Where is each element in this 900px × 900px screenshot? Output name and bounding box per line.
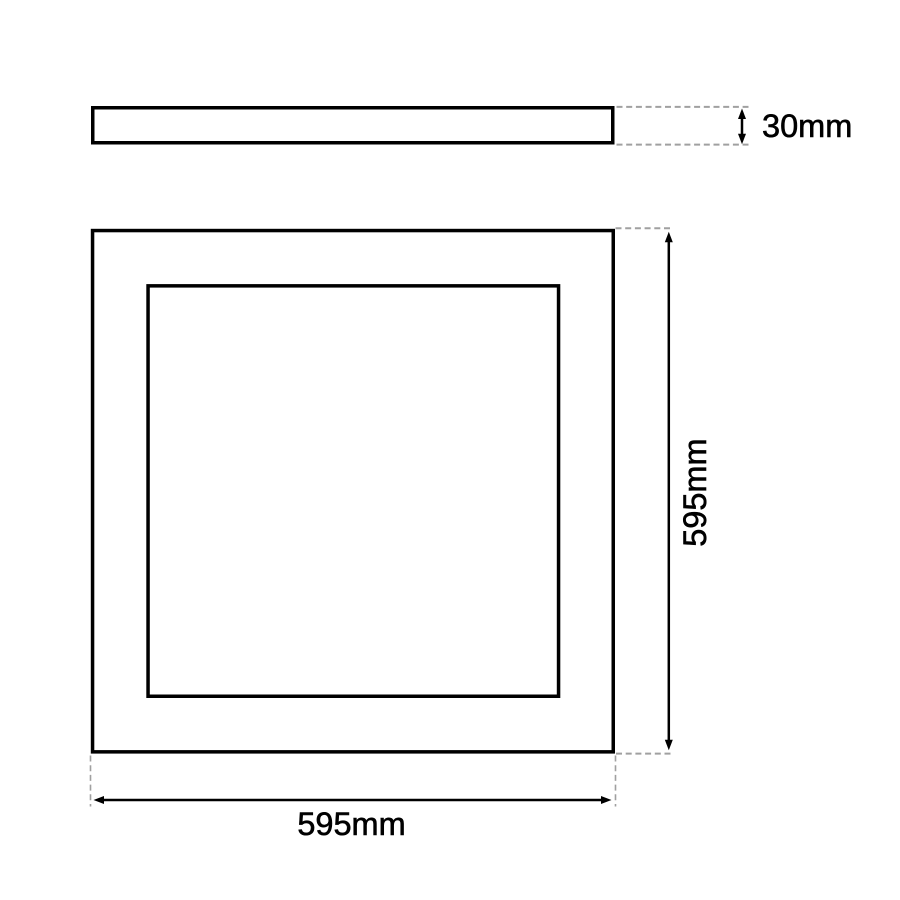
svg-text:595mm: 595mm xyxy=(677,438,713,546)
svg-text:595mm: 595mm xyxy=(297,806,405,842)
svg-text:30mm: 30mm xyxy=(762,108,852,144)
